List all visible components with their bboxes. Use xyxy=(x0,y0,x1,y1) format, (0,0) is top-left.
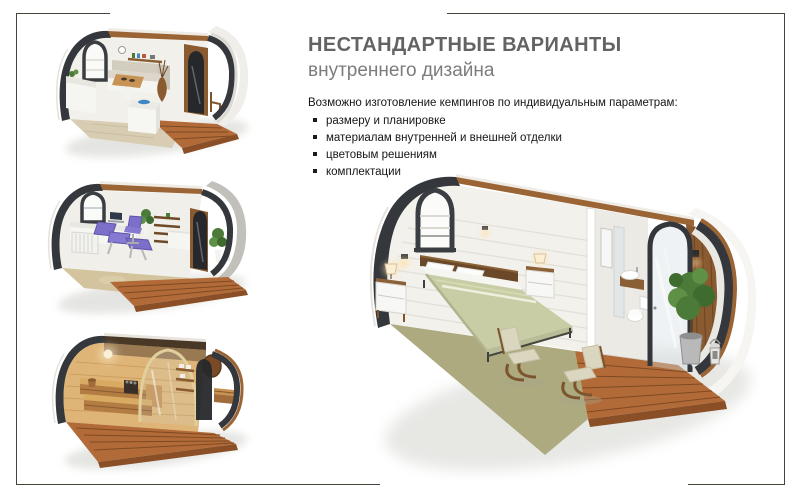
image-overlap-bottom xyxy=(380,481,688,488)
square-bullet-icon xyxy=(313,152,317,156)
slide-title: НЕСТАНДАРТНЫЕ ВАРИАНТЫ xyxy=(308,34,776,57)
bullet-item: комплектации xyxy=(308,164,776,181)
square-bullet-icon xyxy=(313,118,317,122)
bullet-text: размеру и планировке xyxy=(326,113,446,130)
bullet-text: комплектации xyxy=(326,164,401,181)
bullet-list: размеру и планировке материалам внутренн… xyxy=(308,113,776,181)
square-bullet-icon xyxy=(313,135,317,139)
slide-subtitle: внутреннего дизайна xyxy=(308,60,776,82)
intro-text: Возможно изготовление кемпингов по индив… xyxy=(308,97,776,109)
bullet-text: цветовым решениям xyxy=(326,147,437,164)
sauna-pod-image xyxy=(28,320,278,478)
bullet-item: материалам внутренней и внешней отделки xyxy=(308,130,776,147)
bullet-text: материалам внутренней и внешней отделки xyxy=(326,130,562,147)
square-bullet-icon xyxy=(313,169,317,173)
dining-pod-image xyxy=(32,16,282,168)
massage-room-pod-image xyxy=(22,170,282,322)
bedroom-pod-image xyxy=(358,168,782,486)
slide-text-column: НЕСТАНДАРТНЫЕ ВАРИАНТЫ внутреннего дизай… xyxy=(308,34,776,181)
bullet-item: цветовым решениям xyxy=(308,147,776,164)
slide-canvas: НЕСТАНДАРТНЫЕ ВАРИАНТЫ внутреннего дизай… xyxy=(0,0,800,500)
bullet-item: размеру и планировке xyxy=(308,113,776,130)
